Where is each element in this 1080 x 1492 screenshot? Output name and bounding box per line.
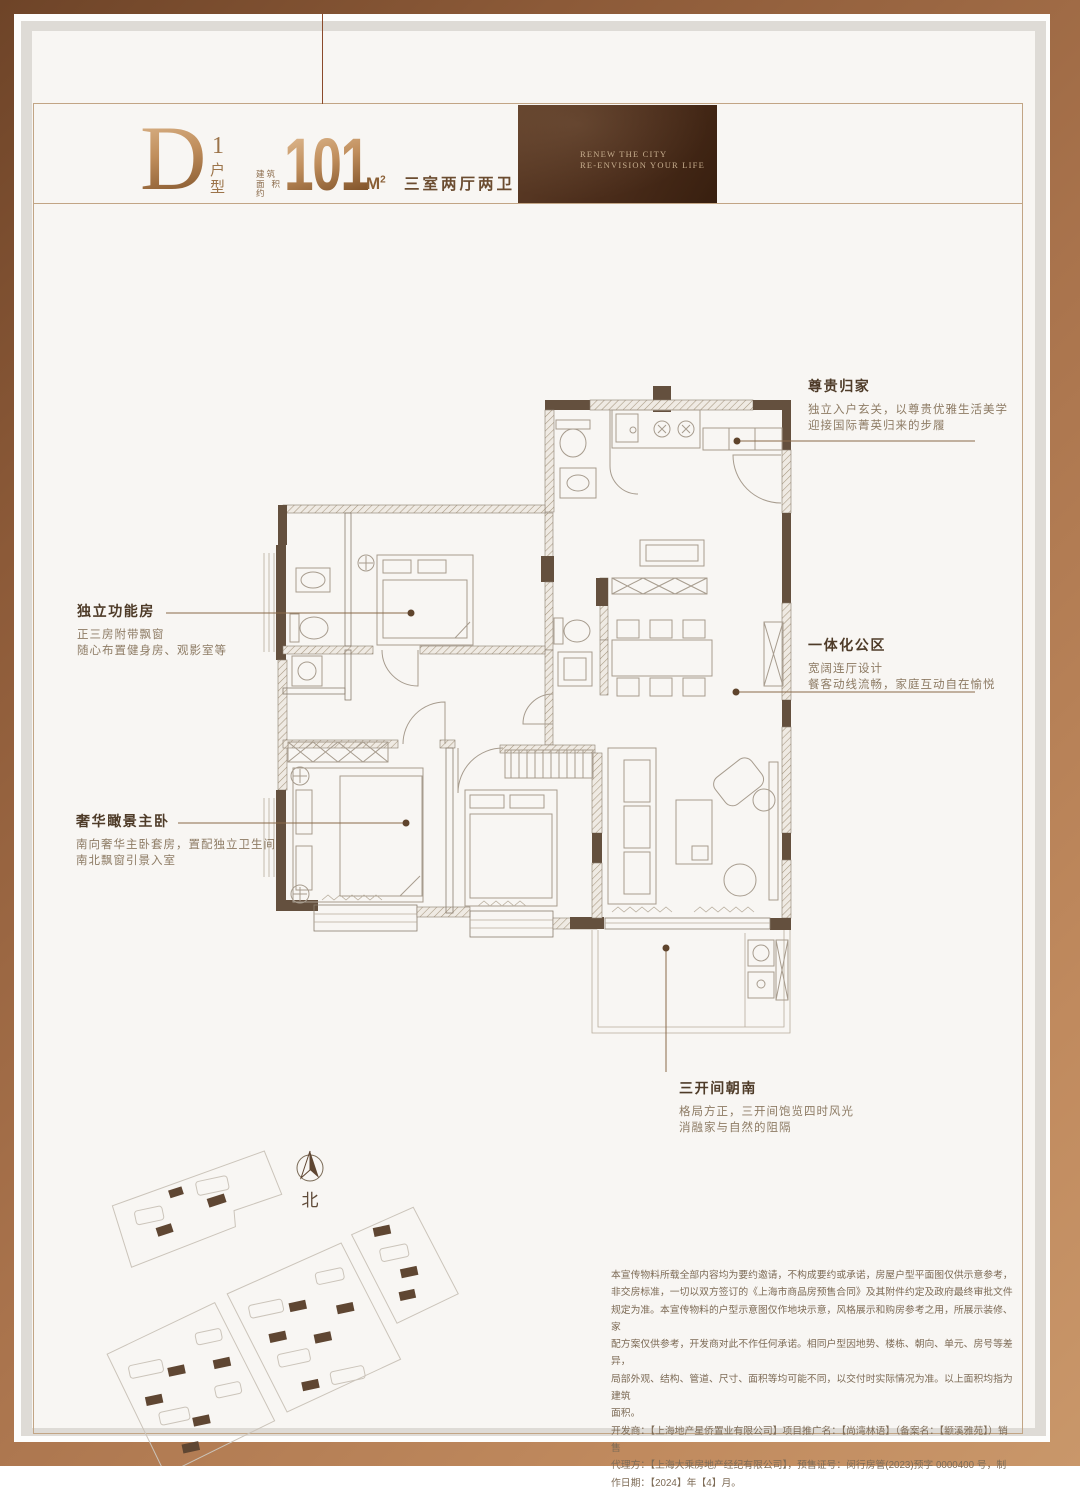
callout-homecoming: 尊贵归家 独立入户玄关，以尊贵优雅生活美学 迎接国际菁英归来的步履 <box>808 376 1018 434</box>
callout-title: 一体化公区 <box>808 635 1018 655</box>
registration-mark <box>322 14 323 104</box>
callout-title: 奢华瞰景主卧 <box>76 811 306 831</box>
brand-slogan: RENEW THE CITY RE-ENVISION YOUR LIFE <box>580 149 705 171</box>
callout-title: 三开间朝南 <box>679 1078 899 1098</box>
legal-disclaimer: 本宣传物料所载全部内容均为要约邀请，不构成要约或承诺，房屋户型平面图仅供示意参考… <box>611 1267 1015 1492</box>
callout-master-bedroom: 奢华瞰景主卧 南向奢华主卧套房，置配独立卫生间 南北飘窗引景入室 <box>76 811 306 869</box>
area-prefix: 建筑 面积约 <box>256 170 282 199</box>
callout-title: 尊贵归家 <box>808 376 1018 396</box>
layout-summary: 三室两厅两卫 <box>404 172 515 194</box>
callout-function-room: 独立功能房 正三房附带飘窗 随心布置健身房、观影室等 <box>77 601 307 659</box>
area-unit: M2 <box>366 174 386 194</box>
callout-title: 独立功能房 <box>77 601 307 621</box>
floorplan-poster-page: { "title_block": { "unit_letter": "D", "… <box>0 0 1080 1466</box>
area-value: 101 <box>284 134 369 196</box>
unit-type-column: 1 户型 <box>205 134 231 196</box>
inner-hairline-frame <box>33 103 1023 1434</box>
callout-south-bays: 三开间朝南 格局方正，三开间饱览四时风光 消融家与自然的阻隔 <box>679 1078 899 1136</box>
unit-number: 1 <box>205 134 231 158</box>
brand-box: RENEW THE CITY RE-ENVISION YOUR LIFE <box>518 105 717 203</box>
unit-letter: D <box>140 112 206 204</box>
callout-public-area: 一体化公区 宽阔连厅设计 餐客动线流畅，家庭互动自在愉悦 <box>808 635 1018 693</box>
unit-label: 户型 <box>205 162 231 196</box>
